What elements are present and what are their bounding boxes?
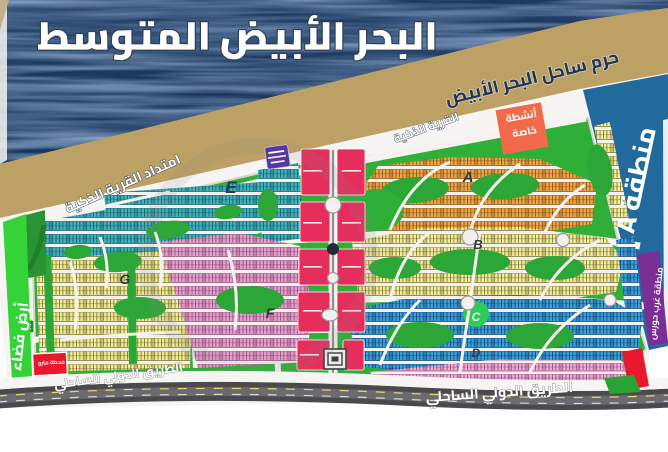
svg-text:D: D <box>472 346 481 360</box>
svg-text:B: B <box>473 237 482 252</box>
svg-text:F: F <box>266 305 275 321</box>
svg-text:C: C <box>472 310 481 324</box>
svg-text:G: G <box>120 271 131 287</box>
svg-text:E: E <box>225 178 237 197</box>
svg-text:A: A <box>462 169 474 186</box>
